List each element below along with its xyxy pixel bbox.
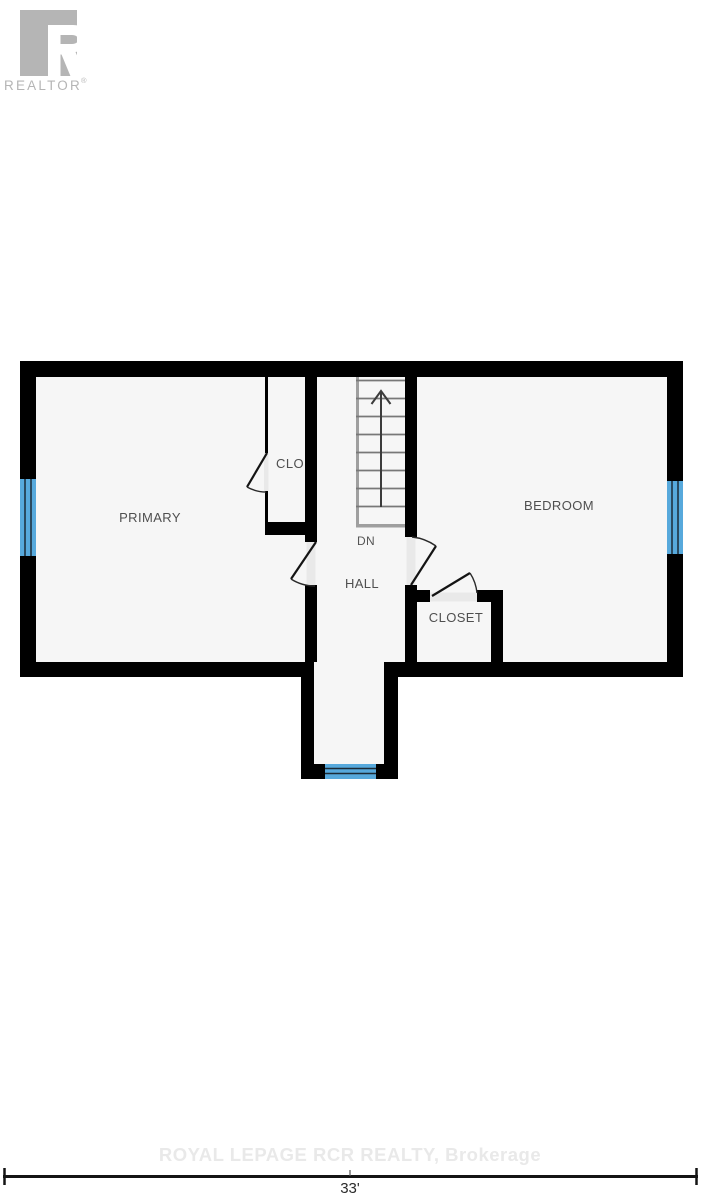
vestibule-wall-bottom-left bbox=[301, 764, 325, 779]
wall-top bbox=[20, 361, 683, 377]
brokerage-watermark: ROYAL LEPAGE RCR REALTY, Brokerage bbox=[159, 1144, 541, 1165]
primary-hall-wall-lower bbox=[305, 585, 317, 662]
wall-right-upper bbox=[667, 361, 683, 481]
clo-wall-upper bbox=[265, 377, 268, 453]
vestibule-floor-area bbox=[314, 662, 384, 764]
vestibule-wall-bottom-right bbox=[376, 764, 398, 779]
clo-wall-lower bbox=[265, 491, 268, 522]
floor-plan-page: { "branding": { "logo_letter": "R", "log… bbox=[0, 0, 701, 1200]
hall-bedroom-wall-upper bbox=[405, 377, 417, 537]
wall-right-lower bbox=[667, 554, 683, 677]
room-label-bedroom: BEDROOM bbox=[524, 498, 594, 513]
room-label-clo: CLO bbox=[276, 456, 304, 471]
floor-areas bbox=[36, 377, 667, 764]
wall-left-upper bbox=[20, 361, 36, 479]
realtor-logo-text: REALTOR bbox=[4, 78, 82, 93]
dimension-width-label: 33' bbox=[340, 1180, 360, 1197]
wall-bottom-right bbox=[397, 662, 683, 677]
vestibule-wall-right bbox=[384, 662, 398, 779]
room-label-hall: HALL bbox=[345, 576, 379, 591]
realtor-logo: REALTOR ® bbox=[4, 10, 89, 93]
stair-bottom-edge bbox=[356, 524, 405, 528]
closet-wall-right bbox=[491, 590, 503, 677]
window-right bbox=[667, 481, 683, 554]
window-left bbox=[20, 479, 36, 556]
wall-left-lower bbox=[20, 556, 36, 677]
closet-wall-top-left bbox=[405, 590, 430, 602]
window-bottom bbox=[325, 764, 376, 779]
primary-hall-wall-upper bbox=[305, 377, 317, 542]
stairs-down-label: DN bbox=[357, 534, 375, 548]
room-label-primary: PRIMARY bbox=[119, 510, 181, 525]
wall-bottom-left bbox=[20, 662, 301, 677]
vestibule-wall-left bbox=[301, 662, 314, 779]
registered-trademark-icon: ® bbox=[81, 76, 87, 85]
floor-plan-canvas: REALTOR ® bbox=[0, 0, 701, 1200]
room-label-closet: CLOSET bbox=[429, 610, 483, 625]
